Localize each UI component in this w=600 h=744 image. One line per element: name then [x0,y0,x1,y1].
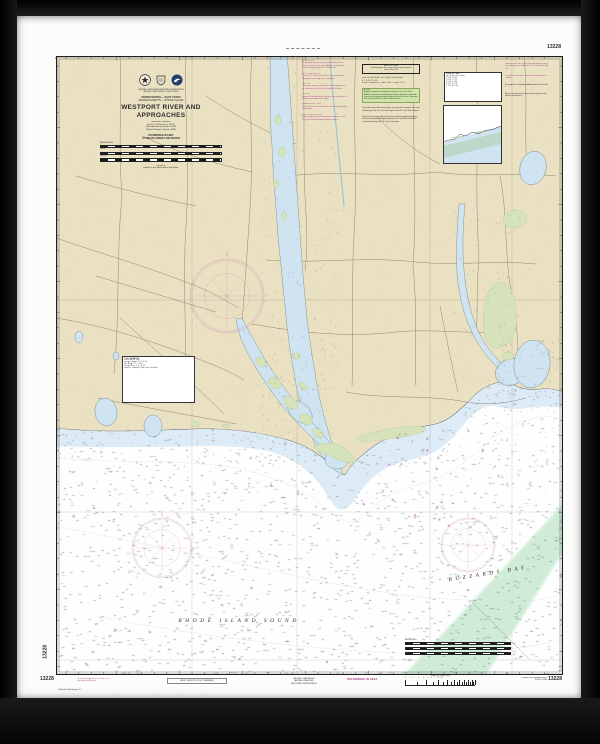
inset-map-graphics [444,106,501,163]
conversion-table: CONVERSION TABLE Feet Meters Feet Meters… [444,72,502,102]
inner-scale-meters-bar [405,652,511,655]
notes-column-right: CAUTION Limitations on the use of certai… [505,62,549,98]
scale-bar-meters [100,158,222,161]
department-lines: U.S. DEPARTMENT OF COMMERCE NATIONAL OCE… [96,88,226,95]
log-scale-tick [472,680,473,685]
projection-block: Mercator Projection Scale 1:20,000 at La… [96,121,226,132]
note-radar: RADAR REFLECTORS Radar reflectors have b… [302,103,348,110]
log-scale-tick [443,682,444,685]
log-scale-tick [426,680,427,685]
log-scale-tick [475,680,476,685]
chart-title: WESTPORT RIVER AND APPROACHES [96,104,226,118]
notes-column-left: AUTHORITIES Hydrography and topography b… [302,60,348,121]
picture-frame-left [0,0,17,744]
commerce-seal-icon [139,74,151,86]
left-vertical-chart-number: 13228 [43,629,49,659]
note-radio: CAUTION Limitations on the use of certai… [505,62,549,71]
framed-nautical-chart: SOUNDINGS IN FEET 13228 13228 [0,0,600,744]
log-speed-scale-ticks [405,680,475,686]
states-line: MASSACHUSETTS — RHODE ISLAND [96,99,226,102]
scale-bar-yards [100,152,222,155]
heights-note: HEIGHTS Heights in feet above Mean High … [96,165,226,170]
scale-bars: NAUTICAL MILES YARDS METERS [96,143,226,162]
log-scale-tick [438,680,439,685]
log-scale-tick [466,682,467,685]
title-block: U.S. DEPARTMENT OF COMMERCE NATIONAL OCE… [96,74,226,170]
log-scale-tick [454,680,455,685]
bottom-soundings-note: SOUNDINGS IN FEET [347,678,378,682]
top-chart-number: 13228 [517,45,561,51]
soundings-block: SOUNDINGS IN FEET AT MEAN LOWER LOW WATE… [96,134,226,140]
inner-scale-yards-bar [405,647,511,650]
bottom-corrections-note: Corrected through NM 12/13 LNM 11/13 (se… [77,678,163,683]
coast-survey-shield-icon [155,74,167,86]
log-scale-tick [459,680,460,685]
log-scale-tick [447,680,448,685]
note-warning: WARNING The prudent mariner will not rel… [505,73,549,80]
note-authorities: AUTHORITIES Hydrography and topography b… [302,60,348,70]
rhode-island-sound-label: RHODE ISLAND SOUND [159,618,319,624]
small-pond-1 [75,331,83,343]
chart-map-area: U.S. DEPARTMENT OF COMMERCE NATIONAL OCE… [56,56,563,675]
log-scale-tick [433,682,434,685]
notes-column-center: WESTPORT RIVER Controlling depths from s… [362,64,420,124]
scale-bar-nm [100,145,222,148]
inset-map [443,105,502,164]
survey-table: WESTPORT RIVER Controlling depths from s… [362,64,420,74]
log-scale-tick [470,682,471,685]
note-caution-1: CAUTION Temporary changes or defects in … [302,83,348,90]
log-scale-tick [462,682,463,685]
inner-scale-nm-bar [405,642,511,645]
log-speed-scale: LOGARITHMIC SPEED SCALE 1 2 3 4 5 6 7 8 … [405,676,475,686]
log-scale-tick [468,680,469,685]
picture-frame-bottom [0,698,600,744]
note-a-green: NOTE A Navigation regulations are publis… [362,88,420,103]
log-scale-tick [451,682,452,685]
note-pollution: POLLUTION REPORTS Report all spills of o… [302,114,348,121]
note-corrections: NOTE This chart has been corrected from … [362,115,420,124]
bottom-long-note: Chart produced from official U.S. Govern… [115,694,365,696]
picture-frame-top [0,0,600,16]
bottom-boxed-note: VERIFY LATEST NOTICE TO MARINERS [167,678,227,684]
note-aids: AIDS TO NAVIGATION Consult U.S. Coast Gu… [302,73,348,80]
depth-table-rows: CONTROLLING DEPTHS IN FEET FROM SEAWARD … [362,76,420,85]
log-scale-tick [405,680,406,685]
note-abbrev: ABBREVIATIONS For complete list of Symbo… [505,83,549,90]
small-pond-2 [113,352,119,360]
bottom-agency-block: PUBLISHED BY THE NATIONAL OCEAN SERVICE … [273,677,335,686]
log-scale-tick [473,682,474,685]
coastal-pond-2 [144,415,162,437]
log-scale-tick [464,680,465,685]
log-scale-tick [457,682,458,685]
bottom-chart-number-left: 13228 [40,677,54,683]
note-caution-2: CAUTION Improved channels shown by broke… [302,93,348,100]
note-reports: REPORTS Mariners are requested to report… [505,92,549,99]
noaa-logo-icon [171,74,183,86]
bottom-published-note: Published at Washington, D.C. [58,689,128,691]
bottom-chart-number-right: 13228 [532,677,562,683]
inner-scale-bars: NAUTICAL MILES [405,640,517,655]
log-scale-tick [417,682,418,685]
agency-logos [96,74,226,86]
picture-frame-right [581,0,600,744]
note-caution-center: CAUTION The prudent mariner will not rel… [362,106,420,113]
tidal-information-table: TIDAL INFORMATION Place MHW MTL MLLW Wes… [122,356,195,403]
top-fold-mark [286,48,320,49]
chart-paper: SOUNDINGS IN FEET 13228 13228 [17,16,581,698]
